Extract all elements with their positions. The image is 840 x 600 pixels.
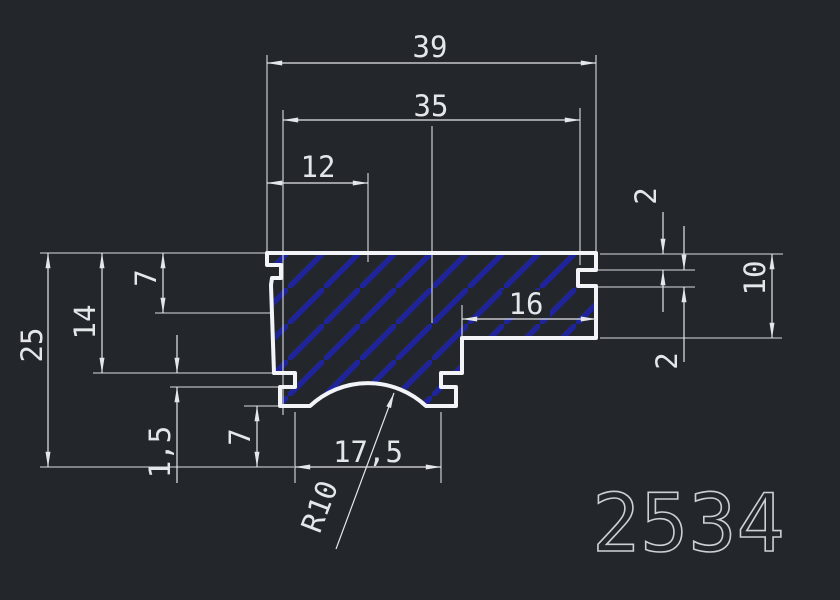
dim-foot-height-label: 7 [223, 428, 257, 445]
dim-total-height-label: 25 [15, 328, 49, 363]
dim-upper-width-label: 35 [414, 89, 449, 123]
dim-slot-radius-label: R10 [294, 476, 345, 537]
dim-right-tab-height: 10 [738, 254, 772, 338]
dim-left-upper-depth-label: 7 [129, 269, 163, 286]
dim-left-width: 12 [267, 150, 368, 184]
cad-drawing-canvas: 39 35 12 16 17,5 25 14 7 1,5 7 [0, 0, 840, 600]
dim-right-step-depth-label: 2 [629, 187, 663, 204]
dim-foot-height: 7 [223, 406, 257, 467]
dim-right-tab-height-label: 10 [738, 261, 772, 296]
dim-right-groove-height-label: 2 [650, 352, 684, 369]
dim-left-width-label: 12 [301, 150, 336, 184]
dim-height-to-groove: 14 [68, 253, 102, 373]
dim-left-upper-depth: 7 [129, 253, 163, 313]
dim-tab-width-label: 16 [509, 287, 544, 321]
radius-leader: R10 [294, 393, 394, 549]
dim-total-width-label: 39 [413, 30, 448, 64]
dim-right-groove-height: 2 [650, 226, 684, 370]
dim-upper-width: 35 [283, 89, 580, 123]
part-number: 2534 [592, 477, 785, 570]
dim-height-to-groove-label: 14 [68, 305, 102, 340]
dim-left-groove-height: 1,5 [143, 335, 177, 483]
cad-drawing: 39 35 12 16 17,5 25 14 7 1,5 7 [0, 0, 840, 600]
dim-left-groove-height-label: 1,5 [143, 426, 177, 478]
dim-total-width: 39 [267, 30, 596, 64]
dim-total-height: 25 [15, 253, 49, 467]
dim-right-step-depth: 2 [629, 187, 663, 312]
